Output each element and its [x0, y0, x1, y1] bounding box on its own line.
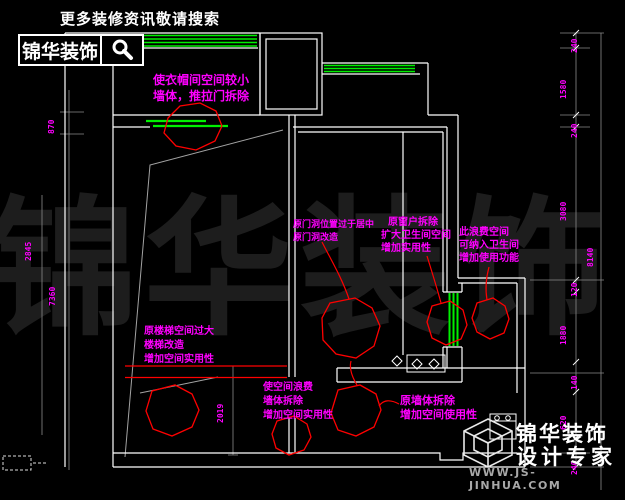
- annotation-line: 原楼梯空间过大: [144, 325, 214, 339]
- annotation-wasted-space: 此浪费空间 可纳入卫生间 增加使用功能: [459, 226, 519, 265]
- annotation-line: 原门洞改造: [293, 232, 374, 245]
- footer-brand-block: 锦华装饰 设计专家 WWW.JS-JINHUA.COM: [455, 408, 625, 500]
- window-northeast: [324, 66, 415, 72]
- dim-right-5: 120: [570, 283, 579, 297]
- promo-tagline: 更多装修资讯敬请搜索: [60, 8, 220, 29]
- dim-right-4: 3080: [559, 202, 568, 221]
- annotation-door-opening: 原门洞位置过于居中 原门洞改造: [293, 219, 374, 245]
- annotation-line: 使衣帽间空间较小: [153, 72, 249, 88]
- annotation-line: 使空间浪费: [263, 381, 333, 395]
- dim-right-total: 8140: [586, 248, 595, 267]
- dim-right-6: 1880: [559, 326, 568, 345]
- annotation-line: 增加空间实用性: [263, 409, 333, 423]
- annotation-window-removal: 原窗户拆除 扩大卫生间空间 增加实用性: [381, 216, 451, 255]
- magnifier-icon: [102, 38, 142, 62]
- window-north: [143, 36, 257, 47]
- dim-inner-stair: 2019: [216, 404, 225, 423]
- sliding-door: [146, 121, 228, 126]
- annotation-line: 原门洞位置过于居中: [293, 219, 374, 232]
- vanity-counter: [392, 355, 445, 372]
- annotation-line: 增加空间实用性: [144, 353, 214, 367]
- annotation-line: 扩大卫生间空间: [381, 229, 451, 242]
- construction-lines: [125, 130, 283, 457]
- cube-logo-icon: [459, 416, 517, 470]
- legend-box: [3, 456, 46, 470]
- annotation-line: 增加实用性: [381, 242, 451, 255]
- dim-right-1: 240: [570, 39, 579, 53]
- annotation-line: 墙体拆除: [263, 395, 333, 409]
- annotation-line: 可纳入卫生间: [459, 239, 519, 252]
- footer-website: WWW.JS-JINHUA.COM: [469, 466, 625, 492]
- annotation-closet: 使衣帽间空间较小 墙体，推拉门拆除: [153, 72, 249, 104]
- dim-left-1: 870: [47, 120, 56, 134]
- dim-right-2: 1580: [559, 80, 568, 99]
- cad-floorplan-screenshot: 锦华装饰: [0, 0, 625, 500]
- dim-left-2: 2845: [24, 242, 33, 261]
- annotation-line: 原墙体拆除: [400, 394, 477, 408]
- annotation-line: 楼梯改造: [144, 339, 214, 353]
- dim-right-3: 240: [570, 124, 579, 138]
- annotation-line: 增加使用功能: [459, 252, 519, 265]
- annotation-line: 原窗户拆除: [381, 216, 451, 229]
- brand-search-box: 锦华装饰: [18, 34, 144, 66]
- dim-right-7: 140: [570, 376, 579, 390]
- annotation-stair: 原楼梯空间过大 楼梯改造 增加空间实用性: [144, 325, 214, 367]
- brand-logo-text: 锦华装饰: [20, 37, 100, 64]
- dim-left-3: 7360: [48, 287, 57, 306]
- annotation-line: 此浪费空间: [459, 226, 519, 239]
- annotation-wall-center: 使空间浪费 墙体拆除 增加空间实用性: [263, 381, 333, 423]
- annotation-line: 墙体，推拉门拆除: [153, 88, 249, 104]
